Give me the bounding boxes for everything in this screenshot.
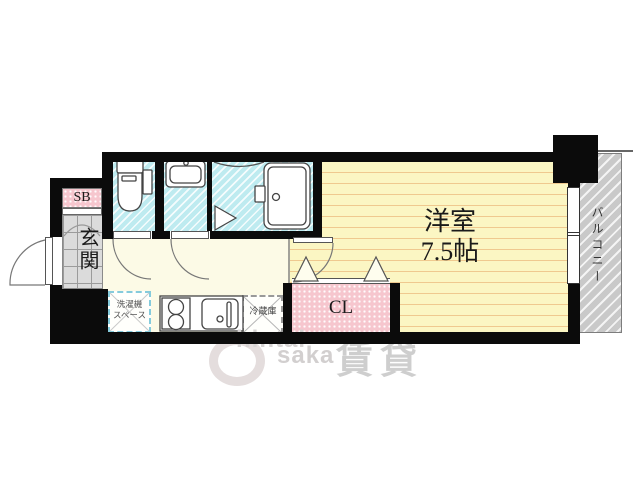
shoe-counter — [62, 208, 102, 215]
bath-folding-door — [215, 206, 236, 230]
floor-plan-canvas: SB CL — [0, 0, 640, 480]
room-label: 洋室 7.5帖 — [385, 207, 515, 266]
washbasin-icon — [166, 161, 205, 187]
entrance-label: 玄関 — [76, 227, 98, 273]
roof-line — [598, 150, 633, 152]
balcony-label: バルコニー — [589, 206, 606, 286]
room-door-leaf — [293, 237, 333, 243]
shoe-box: SB — [62, 188, 102, 208]
wall-bottom — [50, 332, 580, 344]
balcony-window — [567, 187, 580, 284]
wall-bath-room — [313, 162, 322, 238]
shoe-box-label: SB — [73, 190, 90, 206]
closet-bifold-doors — [294, 257, 388, 281]
wall-toilet-left — [102, 152, 113, 239]
wall-right-lower — [568, 283, 580, 333]
washroom-door-arc — [171, 239, 209, 279]
refrigerator-label: 冷蔵庫 — [243, 306, 283, 317]
toilet-door-arc — [113, 239, 151, 279]
window-mullion — [568, 232, 579, 236]
wall-closet-left — [283, 283, 292, 332]
toilet-door-leaf — [113, 231, 151, 239]
washer-space-line1: 洗濯機 — [108, 299, 151, 310]
room-name-label: 洋室 — [385, 207, 515, 237]
watermark-text-bottom: saka — [277, 342, 334, 370]
wall-top — [103, 152, 568, 162]
room-size-label: 7.5帖 — [385, 237, 515, 266]
washer-space-line2: スペース — [108, 310, 151, 321]
entrance-door-leaf — [45, 237, 53, 285]
washer-space-label: 洗濯機 スペース — [108, 299, 151, 321]
toilet-icon — [117, 160, 152, 211]
entrance-door-arc — [10, 240, 45, 285]
wall-sanitary-seg1 — [152, 231, 170, 239]
sink-icon — [202, 299, 238, 329]
washroom-door-leaf — [171, 231, 209, 239]
wall-closet-right — [390, 283, 400, 332]
wall-wash-bath — [207, 162, 212, 231]
wall-entrance-lower — [50, 289, 108, 332]
wall-pillar-top-right — [553, 135, 598, 183]
wall-toilet-wash — [155, 162, 164, 231]
wall-shoebox-top — [50, 178, 103, 188]
kitchen-counter — [160, 296, 243, 331]
